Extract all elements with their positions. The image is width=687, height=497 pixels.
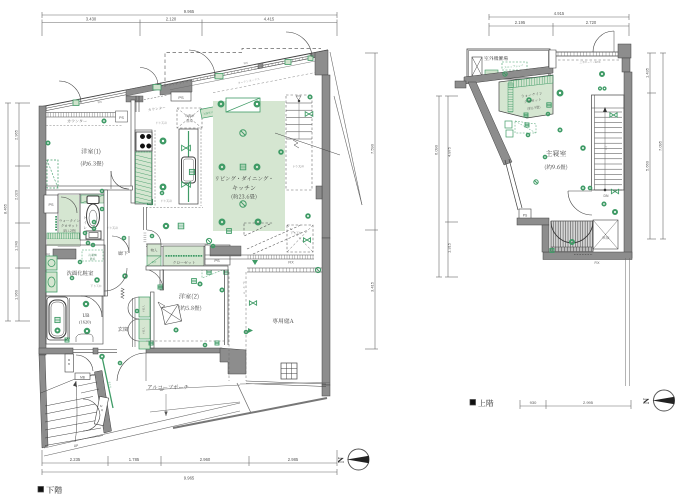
svg-text:FIX: FIX xyxy=(97,100,102,105)
svg-text:4.915: 4.915 xyxy=(554,11,565,16)
svg-text:8.465: 8.465 xyxy=(3,203,8,214)
svg-text:PS: PS xyxy=(178,95,184,100)
svg-text:2.720: 2.720 xyxy=(586,20,597,25)
svg-text:4.875: 4.875 xyxy=(447,146,452,157)
svg-text:9.965: 9.965 xyxy=(184,9,195,14)
svg-text:6.090: 6.090 xyxy=(434,144,439,155)
svg-text:PS: PS xyxy=(119,116,124,120)
svg-text:2.235: 2.235 xyxy=(70,457,81,462)
svg-text:930: 930 xyxy=(530,400,537,405)
svg-text:1.315: 1.315 xyxy=(447,242,452,253)
svg-text:5.660: 5.660 xyxy=(645,160,650,171)
svg-text:2.965: 2.965 xyxy=(14,129,19,140)
svg-text:3.430: 3.430 xyxy=(86,17,97,22)
svg-text:9.965: 9.965 xyxy=(184,476,195,481)
svg-text:UP: UP xyxy=(160,388,165,392)
svg-text:MB: MB xyxy=(80,375,85,379)
svg-text:UP: UP xyxy=(74,444,78,448)
svg-text:(1620): (1620) xyxy=(79,320,91,325)
svg-text:7.590: 7.590 xyxy=(370,143,375,154)
svg-text:2.120: 2.120 xyxy=(166,17,177,22)
svg-text:B: B xyxy=(68,362,70,366)
svg-text:N: N xyxy=(336,456,346,463)
svg-text:2.020: 2.020 xyxy=(14,189,19,200)
svg-text:1.785: 1.785 xyxy=(129,457,140,462)
svg-text:1.960: 1.960 xyxy=(14,289,19,300)
svg-text:UB: UB xyxy=(83,314,91,319)
svg-text:4.415: 4.415 xyxy=(264,17,275,22)
svg-text:N: N xyxy=(641,397,651,404)
svg-text:7.095: 7.095 xyxy=(658,140,663,151)
svg-text:1.435: 1.435 xyxy=(645,67,650,78)
svg-text:DN: DN xyxy=(604,194,609,198)
svg-text:2.995: 2.995 xyxy=(583,400,594,405)
svg-text:3.415: 3.415 xyxy=(370,281,375,292)
svg-text:PS: PS xyxy=(48,203,54,207)
svg-text:1.240: 1.240 xyxy=(14,240,19,251)
svg-text:PS: PS xyxy=(523,214,528,218)
svg-text:2.195: 2.195 xyxy=(515,20,526,25)
svg-text:2.985: 2.985 xyxy=(288,457,299,462)
svg-text:2.960: 2.960 xyxy=(200,457,211,462)
svg-text:FIX: FIX xyxy=(288,261,294,265)
svg-text:FIX: FIX xyxy=(595,261,601,265)
svg-text:FIX: FIX xyxy=(243,61,248,66)
